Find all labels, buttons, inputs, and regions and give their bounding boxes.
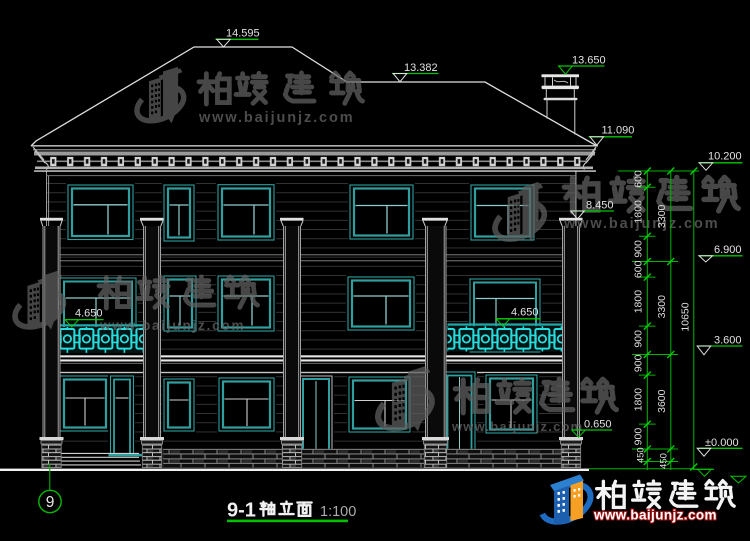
svg-text:www.baijunjz.com: www.baijunjz.com — [593, 508, 717, 523]
svg-text:±0.000: ±0.000 — [705, 437, 739, 449]
svg-text:900: 900 — [633, 354, 645, 372]
svg-text:900: 900 — [633, 240, 645, 258]
svg-text:1800: 1800 — [633, 200, 645, 224]
svg-text:www.baijunjz.com: www.baijunjz.com — [99, 318, 245, 333]
svg-text:900: 900 — [633, 330, 645, 348]
svg-text:14.595: 14.595 — [226, 28, 260, 40]
svg-text:4.650: 4.650 — [75, 308, 103, 320]
svg-text:8.450: 8.450 — [586, 200, 614, 212]
svg-text:1800: 1800 — [633, 290, 645, 314]
svg-text:3600: 3600 — [656, 389, 668, 413]
svg-text:www.baijunjz.com: www.baijunjz.com — [198, 110, 355, 126]
svg-text:3300: 3300 — [656, 204, 668, 228]
svg-text:3300: 3300 — [656, 295, 668, 319]
svg-text:600: 600 — [633, 170, 645, 188]
svg-text:600: 600 — [633, 260, 645, 278]
svg-text:0.650: 0.650 — [584, 419, 612, 431]
svg-text:www.baijunjz.com: www.baijunjz.com — [451, 419, 583, 434]
svg-text:13.382: 13.382 — [404, 62, 438, 74]
svg-text:1800: 1800 — [633, 388, 645, 412]
svg-text:450: 450 — [659, 453, 670, 469]
svg-text:4.650: 4.650 — [511, 307, 539, 319]
svg-text:9: 9 — [46, 494, 55, 511]
svg-text:10650: 10650 — [680, 302, 692, 331]
svg-text:900: 900 — [633, 428, 645, 446]
svg-text:11.090: 11.090 — [602, 125, 635, 137]
svg-text:13.650: 13.650 — [572, 55, 606, 67]
svg-text:6.900: 6.900 — [714, 244, 742, 256]
svg-text:9-1: 9-1 — [227, 500, 256, 522]
svg-text:10.200: 10.200 — [708, 151, 742, 163]
svg-text:450: 450 — [636, 447, 647, 463]
svg-text:1:100: 1:100 — [320, 504, 356, 520]
svg-text:3.600: 3.600 — [714, 335, 742, 347]
